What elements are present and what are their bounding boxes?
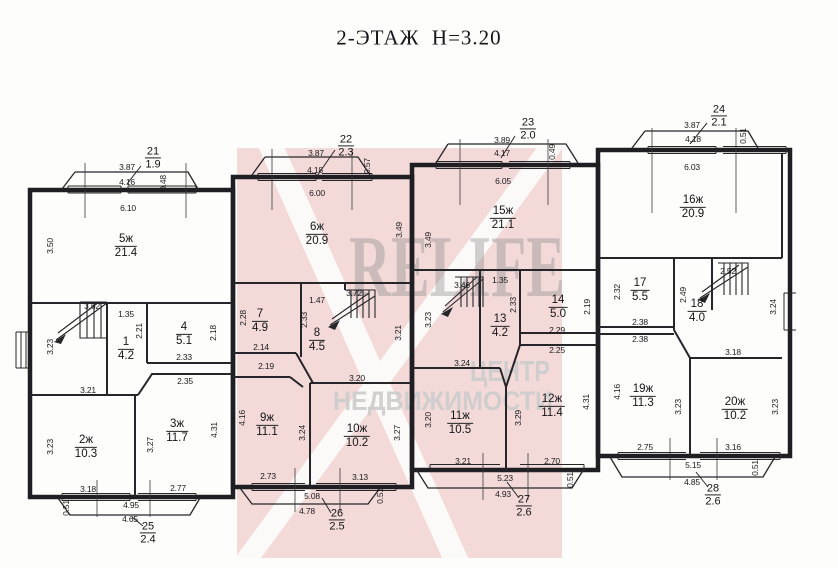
balcony-number: 27 [516,493,532,506]
room-number: 11ж [447,410,473,424]
dimension-label: 1.35 [118,309,134,319]
dimension-label: 3.24 [768,299,778,315]
balcony-area: 2.3 [338,147,354,159]
balcony-area: 2.4 [140,534,156,546]
balcony-label: 22 2.3 [338,133,354,158]
dimension-label: 2.19 [258,361,274,371]
dimension-label: 3.23 [673,399,683,415]
dimension-label: 0.51 [375,488,385,504]
balcony-area: 2.6 [516,507,532,519]
dimension-label: 6.03 [684,162,700,172]
balcony-area: 2.6 [705,496,721,508]
room-label: 17 5.5 [631,277,650,303]
room-area: 21.4 [115,247,137,260]
dimension-label: 3.27 [145,437,155,453]
dimension-label: 4.16 [237,410,247,426]
room-area: 21.1 [490,219,516,232]
room-area: 10.2 [344,437,370,450]
floor-plan-page: RELIFE ЦЕНТР НЕДВИЖИМОСТИ [0,0,838,568]
dimension-label: 0.51 [565,472,575,488]
balcony-area: 2.1 [711,117,727,129]
room-area: 5.0 [549,308,568,321]
room-number: 12ж [539,393,565,407]
dimension-label: 3.23 [45,339,55,355]
dimension-label: 6.00 [309,188,325,198]
room-number: 17 [631,277,650,291]
dimension-label: 2.49 [678,287,688,303]
room-label: 6ж 20.9 [306,221,328,247]
room-number: 14 [549,294,568,308]
dimension-label: 2.33 [299,312,309,328]
room-area: 10.2 [722,410,748,423]
room-area: 20.9 [306,235,328,248]
dimension-label: 4.18 [307,165,323,175]
room-number: 13 [491,313,510,327]
plan-labels: 2-ЭТАЖ Н=3.20 5ж 21.4 1 4.2 4 5.1 2ж 10.… [0,0,838,568]
dimension-label: 3.21 [80,385,96,395]
room-label: 1 4.2 [118,336,134,362]
dimension-label: 2.29 [549,325,565,335]
dimension-label: 2.25 [549,345,565,355]
dimension-label: 3.49 [394,222,404,238]
dimension-label: 3.24 [454,358,470,368]
room-label: 20ж 10.2 [722,396,748,422]
room-area: 4.2 [118,350,134,363]
dimension-label: 3.23 [423,312,433,328]
room-label: 3ж 11.7 [166,418,188,444]
dimension-label: 3.21 [393,325,403,341]
dimension-label: 3.16 [725,442,741,452]
dimension-label: 1.47 [309,295,325,305]
room-number: 7 [252,308,268,322]
dimension-label: 3.24 [297,425,307,441]
room-area: 4.0 [688,312,707,325]
dimension-label: 0.51 [750,460,760,476]
dimension-label: 4.95 [123,500,139,510]
dimension-label: 2.70 [544,456,560,466]
dimension-label: 3.62 [84,301,100,311]
dimension-label: 2.28 [238,310,248,326]
dimension-label: 3.89 [494,135,510,145]
balcony-area: 2.5 [329,521,345,533]
room-area: 10.3 [75,448,97,461]
balcony-number: 22 [338,133,354,146]
dimension-label: 4.18 [685,134,701,144]
balcony-label: 24 2.1 [711,103,727,128]
dimension-label: 2.21 [134,323,144,339]
room-label: 18 4.0 [688,298,707,324]
room-number: 5ж [115,233,137,247]
room-area: 10.5 [447,424,473,437]
room-number: 2ж [75,434,97,448]
dimension-label: 2.18 [208,325,218,341]
dimension-label: 2.38 [632,317,648,327]
dimension-label: 0.51 [738,128,748,144]
room-label: 12ж 11.4 [539,393,565,419]
room-number: 9ж [256,412,278,426]
dimension-label: 4.16 [119,177,135,187]
balcony-number: 25 [140,520,156,533]
balcony-area: 1.9 [145,159,161,171]
dimension-label: 2.35 [177,376,193,386]
dimension-label: 3.20 [349,373,365,383]
dimension-label: 2.73 [260,471,276,481]
room-area: 5.1 [176,335,192,348]
dimension-label: 3.23 [45,439,55,455]
dimension-label: 3.50 [45,238,55,254]
balcony-label: 26 2.5 [329,507,345,532]
dimension-label: 4.16 [612,384,622,400]
dimension-label: 3.49 [423,232,433,248]
dimension-label: 4.17 [494,148,510,158]
dimension-label: 3.18 [725,347,741,357]
dimension-label: 2.33 [176,352,192,362]
dimension-label: 3.29 [513,410,523,426]
dimension-label: 5.08 [304,491,320,501]
dimension-label: 4.65 [122,514,138,524]
room-number: 16ж [680,194,706,208]
room-number: 8 [309,327,325,341]
dimension-label: 4.31 [581,394,591,410]
dimension-label: 4.31 [209,422,219,438]
balcony-label: 21 1.9 [145,145,161,170]
dimension-label: 0.57 [362,158,372,174]
room-label: 10ж 10.2 [344,423,370,449]
dimension-label: 3.20 [423,412,433,428]
balcony-area: 2.0 [520,130,536,142]
room-area: 11.7 [166,432,188,445]
room-area: 4.5 [309,341,325,354]
dimension-label: 3.87 [308,148,324,158]
room-label: 4 5.1 [176,321,192,347]
room-label: 15ж 21.1 [490,205,516,231]
balcony-number: 21 [145,145,161,158]
room-label: 2ж 10.3 [75,434,97,460]
room-label: 19ж 11.3 [630,383,656,409]
balcony-label: 25 2.4 [140,520,156,545]
balcony-label: 23 2.0 [520,116,536,141]
dimension-label: 2.52 [720,266,736,276]
dimension-label: 3.72 [346,288,362,298]
dimension-label: 3.21 [455,456,471,466]
room-label: 11ж 10.5 [447,410,473,436]
dimension-label: 0.49 [547,144,557,160]
room-number: 10ж [344,423,370,437]
balcony-number: 28 [705,482,721,495]
dimension-label: 2.19 [582,299,592,315]
room-label: 8 4.5 [309,327,325,353]
room-area: 4.9 [252,322,268,335]
dimension-label: 3.87 [684,120,700,130]
room-area: 11.4 [539,407,565,420]
dimension-label: 6.05 [495,176,511,186]
dimension-label: 4.85 [684,477,700,487]
dimension-label: 2.33 [508,297,518,313]
dimension-label: 0.51 [61,500,71,516]
room-number: 20ж [722,396,748,410]
room-number: 15ж [490,205,516,219]
dimension-label: 2.38 [632,334,648,344]
room-number: 19ж [630,383,656,397]
dimension-label: 6.10 [120,203,136,213]
dimension-label: 3.87 [119,162,135,172]
room-area: 5.5 [631,291,650,304]
room-number: 1 [118,336,134,350]
dimension-label: 2.77 [170,483,186,493]
dimension-label: 3.18 [80,484,96,494]
dimension-label: 3.27 [392,425,402,441]
plan-title: 2-ЭТАЖ Н=3.20 [336,26,501,51]
room-label: 7 4.9 [252,308,268,334]
dimension-label: 2.75 [637,442,653,452]
dimension-label: 5.23 [497,473,513,483]
room-label: 5ж 21.4 [115,233,137,259]
room-label: 9ж 11.1 [256,412,278,438]
room-number: 3ж [166,418,188,432]
room-label: 13 4.2 [491,313,510,339]
balcony-number: 24 [711,103,727,116]
room-area: 11.1 [256,426,278,439]
balcony-label: 28 2.6 [705,482,721,507]
room-number: 4 [176,321,192,335]
room-label: 16ж 20.9 [680,194,706,220]
dimension-label: 4.93 [495,489,511,499]
dimension-label: 1.35 [492,275,508,285]
dimension-label: 5.15 [685,460,701,470]
room-number: 6ж [306,221,328,235]
dimension-label: 3.13 [352,472,368,482]
room-area: 20.9 [680,208,706,221]
room-area: 4.2 [491,327,510,340]
balcony-number: 23 [520,116,536,129]
dimension-label: 4.78 [299,506,315,516]
room-number: 18 [688,298,707,312]
dimension-label: 3.46 [454,280,470,290]
dimension-label: 3.23 [770,399,780,415]
dimension-label: 2.32 [612,284,622,300]
balcony-number: 26 [329,507,345,520]
balcony-label: 27 2.6 [516,493,532,518]
room-label: 14 5.0 [549,294,568,320]
dimension-label: 2.14 [253,342,269,352]
room-area: 11.3 [630,397,656,410]
dimension-label: 0.48 [158,175,168,191]
